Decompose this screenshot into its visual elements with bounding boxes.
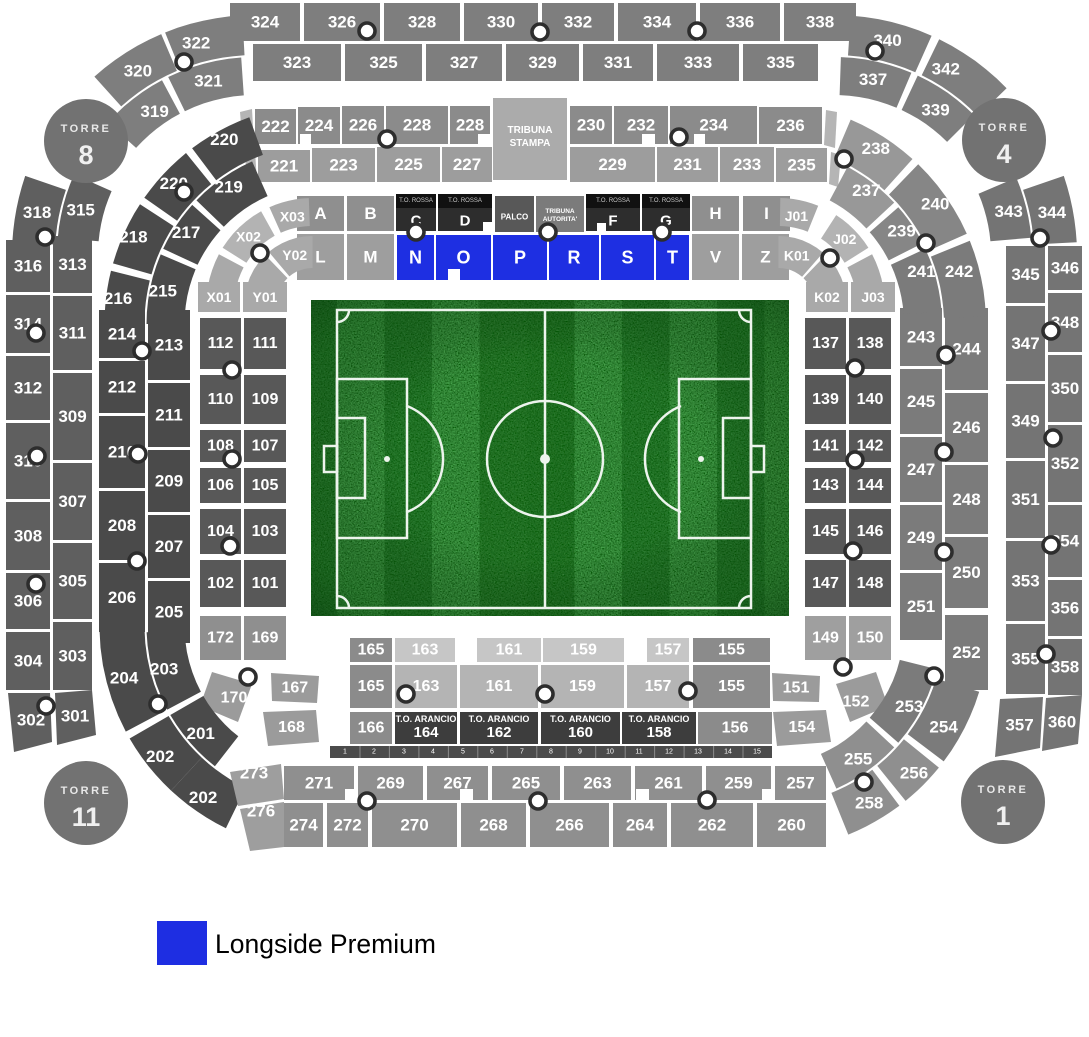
- svg-text:245: 245: [907, 392, 935, 411]
- svg-text:169: 169: [252, 630, 279, 647]
- svg-text:155: 155: [718, 642, 745, 659]
- svg-text:Z: Z: [760, 248, 770, 267]
- svg-text:213: 213: [155, 336, 183, 355]
- svg-text:105: 105: [252, 477, 279, 494]
- svg-text:8: 8: [549, 749, 553, 756]
- svg-text:343: 343: [995, 202, 1023, 221]
- svg-text:255: 255: [844, 750, 872, 769]
- svg-text:O: O: [456, 248, 470, 268]
- svg-text:217: 217: [172, 223, 200, 242]
- svg-text:346: 346: [1051, 259, 1079, 278]
- svg-text:315: 315: [67, 200, 95, 219]
- svg-text:147: 147: [812, 575, 839, 592]
- svg-text:258: 258: [855, 794, 883, 813]
- svg-text:216: 216: [104, 289, 132, 308]
- svg-text:265: 265: [512, 774, 540, 793]
- svg-text:201: 201: [187, 724, 215, 743]
- svg-text:160: 160: [568, 724, 593, 741]
- svg-text:307: 307: [58, 492, 86, 511]
- svg-text:167: 167: [281, 680, 308, 697]
- svg-text:165: 165: [358, 678, 385, 695]
- svg-text:212: 212: [108, 378, 136, 397]
- svg-text:K02: K02: [814, 289, 840, 305]
- svg-text:334: 334: [643, 13, 672, 32]
- svg-text:158: 158: [646, 724, 671, 741]
- svg-text:301: 301: [61, 706, 89, 725]
- svg-text:350: 350: [1051, 379, 1079, 398]
- svg-text:T.O. ROSSA: T.O. ROSSA: [649, 198, 683, 204]
- svg-text:4: 4: [996, 139, 1011, 169]
- svg-text:157: 157: [645, 678, 672, 695]
- svg-text:107: 107: [252, 438, 279, 455]
- svg-text:221: 221: [270, 157, 298, 176]
- svg-text:145: 145: [812, 523, 839, 540]
- svg-text:163: 163: [413, 678, 440, 695]
- svg-text:X01: X01: [207, 289, 232, 305]
- svg-text:T.O. ROSSA: T.O. ROSSA: [399, 198, 433, 204]
- svg-text:228: 228: [403, 116, 431, 135]
- svg-text:226: 226: [349, 116, 377, 135]
- svg-text:144: 144: [857, 477, 884, 494]
- svg-text:159: 159: [569, 678, 596, 695]
- svg-text:252: 252: [952, 643, 980, 662]
- svg-text:161: 161: [486, 678, 513, 695]
- svg-text:211: 211: [155, 406, 182, 425]
- svg-text:303: 303: [58, 647, 86, 666]
- svg-text:137: 137: [812, 335, 839, 352]
- svg-text:313: 313: [58, 255, 86, 274]
- svg-text:208: 208: [108, 516, 136, 535]
- svg-text:248: 248: [952, 490, 980, 509]
- svg-text:7: 7: [520, 749, 524, 756]
- svg-text:14: 14: [724, 749, 732, 756]
- svg-text:J03: J03: [861, 289, 885, 305]
- svg-text:1: 1: [995, 801, 1010, 831]
- svg-text:TRIBUNA: TRIBUNA: [545, 208, 575, 215]
- svg-text:330: 330: [487, 13, 515, 32]
- svg-text:148: 148: [857, 575, 884, 592]
- svg-text:TORRE: TORRE: [61, 123, 112, 135]
- svg-text:227: 227: [453, 155, 481, 174]
- svg-text:165: 165: [358, 642, 385, 659]
- svg-text:309: 309: [58, 407, 86, 426]
- svg-text:272: 272: [333, 816, 361, 835]
- svg-text:260: 260: [777, 816, 805, 835]
- svg-text:159: 159: [570, 642, 597, 659]
- svg-text:TRIBUNA: TRIBUNA: [508, 125, 553, 136]
- svg-text:138: 138: [857, 335, 884, 352]
- svg-text:T.O. ARANCIO: T.O. ARANCIO: [469, 714, 530, 724]
- svg-text:224: 224: [305, 116, 334, 135]
- svg-text:262: 262: [698, 816, 726, 835]
- svg-text:M: M: [363, 248, 377, 267]
- svg-text:8: 8: [78, 140, 93, 170]
- svg-text:204: 204: [110, 668, 139, 687]
- svg-text:J01: J01: [785, 208, 809, 224]
- svg-text:141: 141: [812, 438, 839, 455]
- svg-text:163: 163: [412, 642, 439, 659]
- svg-text:T.O. ARANCIO: T.O. ARANCIO: [629, 714, 690, 724]
- svg-text:T: T: [667, 248, 678, 268]
- svg-text:TORRE: TORRE: [61, 785, 112, 797]
- svg-text:349: 349: [1011, 412, 1039, 431]
- svg-text:243: 243: [907, 328, 935, 347]
- svg-text:172: 172: [207, 630, 234, 647]
- svg-text:337: 337: [859, 70, 887, 89]
- svg-text:K01: K01: [784, 247, 810, 263]
- svg-text:202: 202: [189, 788, 217, 807]
- svg-text:162: 162: [486, 724, 511, 741]
- svg-text:X03: X03: [280, 208, 305, 224]
- svg-text:Longside Premium: Longside Premium: [215, 929, 436, 959]
- svg-text:J02: J02: [833, 231, 857, 247]
- svg-text:342: 342: [932, 60, 960, 79]
- svg-text:10: 10: [606, 749, 614, 756]
- svg-text:239: 239: [887, 222, 915, 241]
- svg-text:PALCO: PALCO: [501, 213, 528, 222]
- svg-text:240: 240: [921, 195, 949, 214]
- svg-text:324: 324: [251, 13, 280, 32]
- svg-text:276: 276: [247, 802, 275, 821]
- svg-text:259: 259: [724, 774, 752, 793]
- svg-text:253: 253: [895, 697, 923, 716]
- svg-text:101: 101: [252, 575, 279, 592]
- svg-text:345: 345: [1011, 265, 1039, 284]
- svg-text:235: 235: [787, 156, 815, 175]
- svg-text:321: 321: [194, 72, 222, 91]
- svg-text:103: 103: [252, 523, 279, 540]
- svg-text:356: 356: [1051, 599, 1079, 618]
- svg-text:237: 237: [852, 181, 880, 200]
- svg-text:254: 254: [929, 717, 958, 736]
- svg-text:251: 251: [907, 597, 935, 616]
- svg-text:358: 358: [1051, 658, 1079, 677]
- svg-text:151: 151: [783, 680, 810, 697]
- svg-text:AUTORITA': AUTORITA': [543, 216, 578, 223]
- svg-text:247: 247: [907, 460, 935, 479]
- svg-text:328: 328: [408, 13, 436, 32]
- svg-text:333: 333: [684, 53, 712, 72]
- svg-text:143: 143: [812, 477, 839, 494]
- svg-text:339: 339: [921, 101, 949, 120]
- svg-text:234: 234: [699, 116, 728, 135]
- svg-text:215: 215: [149, 282, 177, 301]
- svg-text:T.O. ROSSA: T.O. ROSSA: [596, 198, 630, 204]
- svg-text:230: 230: [577, 116, 605, 135]
- svg-text:149: 149: [812, 630, 839, 647]
- svg-text:152: 152: [843, 694, 870, 711]
- svg-text:273: 273: [240, 764, 268, 783]
- svg-text:202: 202: [146, 747, 174, 766]
- svg-text:351: 351: [1011, 490, 1039, 509]
- svg-text:219: 219: [215, 178, 243, 197]
- svg-text:V: V: [710, 248, 722, 267]
- svg-text:338: 338: [806, 13, 834, 32]
- svg-text:228: 228: [456, 116, 484, 135]
- svg-text:13: 13: [694, 749, 702, 756]
- svg-text:T.O. ARANCIO: T.O. ARANCIO: [396, 714, 457, 724]
- svg-text:329: 329: [528, 53, 556, 72]
- svg-text:111: 111: [253, 335, 278, 352]
- svg-text:236: 236: [776, 116, 804, 135]
- svg-text:150: 150: [857, 630, 884, 647]
- svg-text:323: 323: [283, 53, 311, 72]
- svg-text:157: 157: [655, 642, 682, 659]
- svg-text:344: 344: [1038, 203, 1067, 222]
- svg-text:320: 320: [124, 62, 152, 81]
- svg-text:360: 360: [1048, 713, 1076, 732]
- svg-text:206: 206: [108, 588, 136, 607]
- svg-text:238: 238: [862, 139, 890, 158]
- svg-text:109: 109: [252, 391, 279, 408]
- svg-text:4: 4: [431, 749, 435, 756]
- svg-text:R: R: [568, 248, 581, 268]
- svg-text:355: 355: [1011, 650, 1039, 669]
- svg-text:170: 170: [221, 690, 248, 707]
- svg-text:140: 140: [857, 391, 884, 408]
- svg-text:203: 203: [150, 660, 178, 679]
- svg-text:146: 146: [857, 523, 884, 540]
- svg-text:11: 11: [635, 749, 642, 756]
- svg-text:305: 305: [58, 572, 86, 591]
- svg-text:242: 242: [945, 262, 973, 281]
- svg-text:347: 347: [1011, 334, 1039, 353]
- svg-text:335: 335: [766, 53, 794, 72]
- svg-text:156: 156: [722, 720, 749, 737]
- svg-text:166: 166: [358, 720, 385, 737]
- svg-text:231: 231: [673, 155, 701, 174]
- svg-text:9: 9: [578, 749, 582, 756]
- svg-text:223: 223: [329, 156, 357, 175]
- svg-text:232: 232: [627, 116, 655, 135]
- svg-text:TORRE: TORRE: [979, 122, 1030, 134]
- svg-text:331: 331: [604, 53, 632, 72]
- svg-text:N: N: [409, 248, 422, 268]
- svg-text:257: 257: [786, 774, 814, 793]
- svg-text:357: 357: [1005, 716, 1033, 735]
- svg-text:249: 249: [907, 528, 935, 547]
- svg-text:A: A: [314, 204, 326, 223]
- svg-text:266: 266: [555, 816, 583, 835]
- svg-text:261: 261: [654, 774, 682, 793]
- svg-text:TORRE: TORRE: [978, 784, 1029, 796]
- svg-text:15: 15: [753, 749, 761, 756]
- svg-text:168: 168: [278, 719, 305, 736]
- svg-text:2: 2: [372, 749, 376, 756]
- svg-text:271: 271: [305, 774, 333, 793]
- svg-text:269: 269: [376, 774, 404, 793]
- svg-text:312: 312: [14, 379, 42, 398]
- svg-text:244: 244: [952, 340, 981, 359]
- svg-text:306: 306: [14, 592, 42, 611]
- svg-text:6: 6: [490, 749, 494, 756]
- svg-text:F: F: [608, 213, 617, 230]
- svg-text:106: 106: [207, 477, 234, 494]
- svg-text:H: H: [709, 204, 721, 223]
- svg-text:112: 112: [208, 335, 234, 352]
- svg-text:311: 311: [59, 324, 86, 343]
- svg-text:12: 12: [665, 749, 673, 756]
- svg-text:233: 233: [733, 155, 761, 174]
- svg-text:222: 222: [261, 117, 289, 136]
- svg-text:246: 246: [952, 418, 980, 437]
- svg-text:161: 161: [496, 642, 523, 659]
- svg-text:1: 1: [343, 749, 347, 756]
- svg-text:229: 229: [598, 155, 626, 174]
- svg-text:154: 154: [788, 719, 815, 736]
- svg-text:220: 220: [210, 130, 238, 149]
- svg-text:I: I: [764, 204, 769, 223]
- svg-text:205: 205: [155, 603, 183, 622]
- svg-text:110: 110: [208, 391, 234, 408]
- svg-text:P: P: [514, 248, 526, 268]
- svg-text:209: 209: [155, 472, 183, 491]
- svg-text:D: D: [460, 213, 471, 230]
- svg-text:270: 270: [400, 816, 428, 835]
- svg-text:319: 319: [140, 102, 168, 121]
- svg-text:256: 256: [900, 763, 928, 782]
- svg-text:352: 352: [1051, 454, 1079, 473]
- svg-text:218: 218: [119, 227, 147, 246]
- svg-text:164: 164: [413, 724, 439, 741]
- svg-text:139: 139: [812, 391, 839, 408]
- svg-text:264: 264: [626, 816, 655, 835]
- svg-text:Y01: Y01: [253, 289, 278, 305]
- svg-text:241: 241: [907, 262, 935, 281]
- svg-text:3: 3: [402, 749, 406, 756]
- svg-text:353: 353: [1011, 572, 1039, 591]
- svg-text:250: 250: [952, 563, 980, 582]
- svg-text:Y02: Y02: [282, 247, 307, 263]
- svg-text:L: L: [315, 248, 325, 267]
- svg-text:5: 5: [461, 749, 465, 756]
- svg-text:274: 274: [289, 816, 318, 835]
- svg-text:11: 11: [72, 802, 101, 832]
- svg-text:325: 325: [369, 53, 397, 72]
- svg-text:B: B: [364, 204, 376, 223]
- svg-text:X02: X02: [236, 229, 261, 245]
- svg-text:308: 308: [14, 527, 42, 546]
- svg-text:T.O. ARANCIO: T.O. ARANCIO: [550, 714, 611, 724]
- svg-text:S: S: [621, 248, 633, 268]
- svg-text:326: 326: [328, 13, 356, 32]
- svg-text:225: 225: [394, 155, 422, 174]
- svg-text:207: 207: [155, 537, 183, 556]
- svg-text:332: 332: [564, 13, 592, 32]
- svg-text:336: 336: [726, 13, 754, 32]
- svg-text:316: 316: [14, 257, 42, 276]
- svg-text:214: 214: [108, 325, 137, 344]
- svg-text:STAMPA: STAMPA: [510, 138, 551, 149]
- svg-text:102: 102: [207, 575, 234, 592]
- svg-text:318: 318: [23, 203, 51, 222]
- svg-text:304: 304: [14, 652, 43, 671]
- svg-text:268: 268: [479, 816, 507, 835]
- svg-text:263: 263: [583, 774, 611, 793]
- svg-text:327: 327: [450, 53, 478, 72]
- svg-text:142: 142: [857, 438, 884, 455]
- svg-text:T.O. ROSSA: T.O. ROSSA: [448, 198, 482, 204]
- svg-text:322: 322: [182, 34, 210, 53]
- svg-text:155: 155: [718, 678, 745, 695]
